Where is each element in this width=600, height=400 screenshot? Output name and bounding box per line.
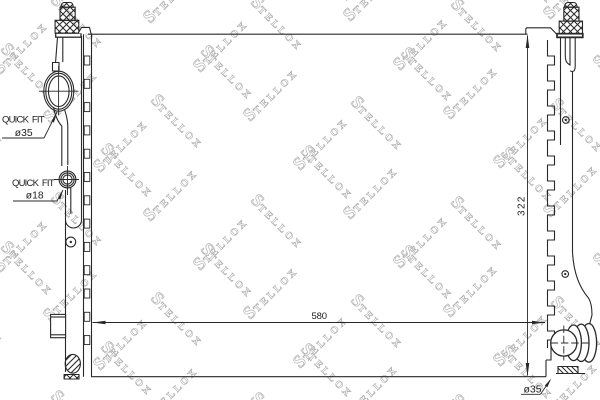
- svg-text:ø35: ø35: [15, 128, 33, 139]
- svg-text:ø18: ø18: [26, 191, 44, 202]
- svg-text:QUICK FIT: QUICK FIT: [2, 114, 45, 125]
- svg-text:QUICK FIT: QUICK FIT: [12, 178, 55, 189]
- svg-text:322: 322: [517, 196, 528, 216]
- svg-text:ø35: ø35: [524, 383, 542, 395]
- svg-text:580: 580: [312, 311, 328, 322]
